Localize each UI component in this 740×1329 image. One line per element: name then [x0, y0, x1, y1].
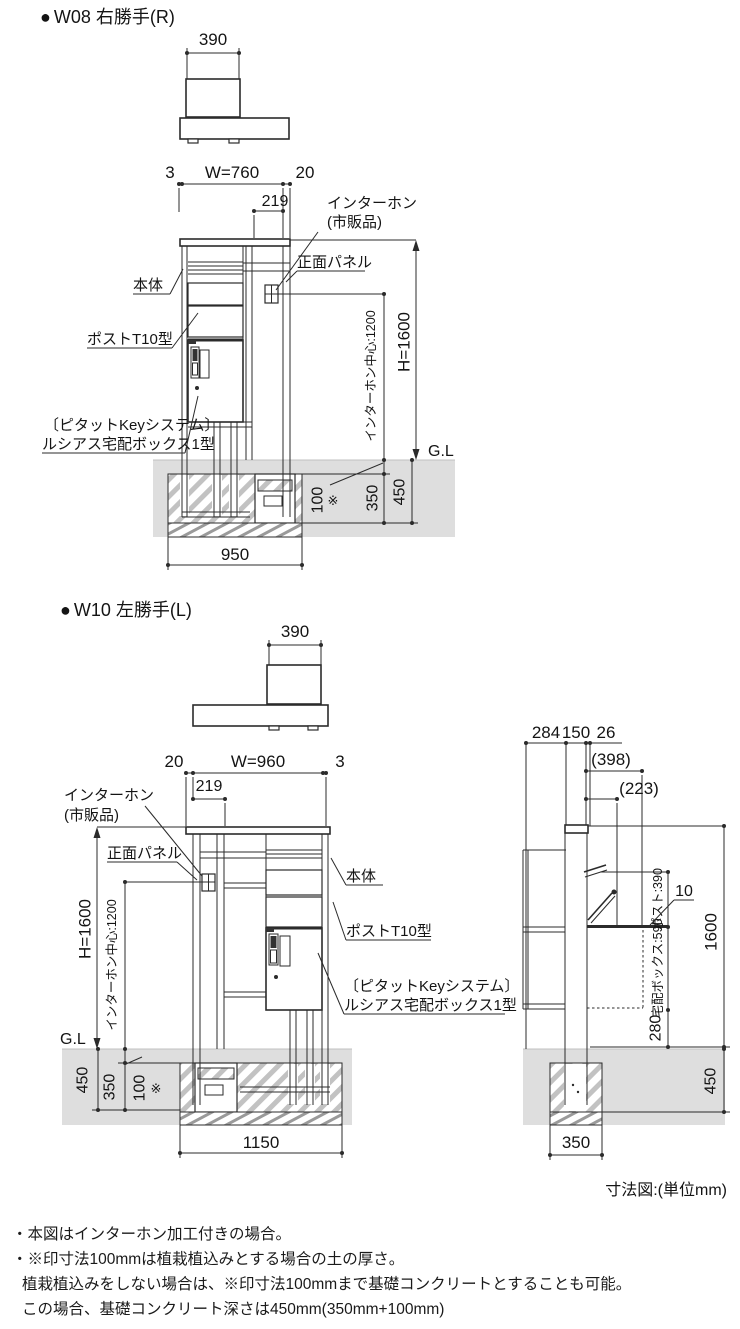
- w08-section: ●W08 右勝手(R) 390: [40, 7, 455, 570]
- w08-intercom-label-1: インターホン: [327, 195, 417, 212]
- w10-body-label: 本体: [346, 868, 376, 885]
- w10-title: ●W10 左勝手(L): [60, 600, 192, 620]
- w10-plan-post: [267, 665, 321, 704]
- side-foundation-gravel: [550, 1112, 602, 1125]
- w08-soil-depth-dim: 100: [310, 487, 327, 514]
- side-flap-arm: [588, 893, 612, 920]
- w10-intercom-label-2: (市販品): [64, 807, 119, 824]
- w08-post-flap: [188, 306, 243, 337]
- w10-top-cap: [186, 827, 330, 834]
- w08-foundation-depth-dim: 350: [365, 485, 382, 512]
- w10-post-model-label: ポストT10型: [346, 923, 432, 940]
- w10-key-system-label-2: ルシアス宅配ボックス1型: [344, 997, 517, 1014]
- w10-section: ●W10 左勝手(L) 390: [60, 600, 519, 1158]
- drawing-caption: 寸法図:(単位mm): [605, 1181, 727, 1199]
- w08-plan-base: [180, 118, 289, 139]
- w10-post-flap: [266, 897, 322, 927]
- w10-total-depth-dim: 450: [75, 1067, 92, 1094]
- w10-key-system-label-1: 〔ピタットKeyシステム〕: [344, 978, 519, 995]
- w10-plan-width-dim: 390: [281, 622, 309, 641]
- side-total-height-dim: 1600: [702, 913, 721, 951]
- w08-height-dim: H=1600: [395, 312, 414, 372]
- w08-intercom-offset-dim: 219: [262, 193, 289, 210]
- w10-soil-depth-dim: 100: [132, 1075, 149, 1102]
- side-box-height-dim: 宅配ボックス:590: [650, 918, 665, 1017]
- w10-soil-note-mark: ※: [151, 1081, 162, 1096]
- w08-height-dims: H=1600 インターホン中心:1200 G.L: [278, 240, 454, 460]
- w08-front-panel-label: 正面パネル: [297, 254, 372, 271]
- w10-intercom-offset-dim: 219: [196, 778, 223, 795]
- w10-plan-base: [193, 705, 328, 726]
- w08-soil-note-mark: ※: [328, 493, 339, 508]
- bullet-icon: ●: [40, 7, 51, 27]
- w08-foundation-width-dim: 950: [221, 545, 249, 564]
- footnotes: ・本図はインターホン加工付きの場合。 ・※印寸法100mmは植栽植込みとする場合…: [12, 1222, 631, 1322]
- side-foundation-depth-dim: 450: [703, 1068, 720, 1095]
- bullet-icon: ●: [60, 600, 71, 620]
- note-line: ・※印寸法100mmは植栽植込みとする場合の土の厚さ。: [12, 1247, 631, 1272]
- w08-foundation-gravel: [168, 523, 302, 537]
- w10-front-panel-label: 正面パネル: [107, 845, 182, 862]
- w08-post-model-label: ポストT10型: [87, 331, 173, 348]
- w08-plan-width-dim: 390: [199, 30, 227, 49]
- w10-key-dot: [274, 975, 278, 979]
- side-box-depth-ref-dim: (223): [619, 779, 659, 798]
- w08-key-system-label-2: ルシアス宅配ボックス1型: [42, 436, 215, 453]
- w08-intercom-center-dim: インターホン中心:1200: [363, 310, 378, 441]
- w08-plan-post: [186, 79, 240, 117]
- w10-intercom-label-1: インターホン: [64, 787, 154, 804]
- w10-height-dim: H=1600: [76, 899, 95, 959]
- w10-post-window: [266, 870, 322, 895]
- w08-total-depth-dim: 450: [392, 479, 409, 506]
- w08-left-gap-dim: 3: [165, 163, 174, 182]
- side-foundation-width-dim: 350: [562, 1133, 590, 1152]
- w08-top-cap: [180, 239, 290, 246]
- w10-width-dims: 20 W=960 3 219: [165, 752, 345, 826]
- w10-width-dim: W=960: [231, 752, 285, 771]
- side-depth-dims: 284 150 26 (398) (223): [524, 723, 659, 1049]
- w08-body-label: 本体: [133, 277, 163, 294]
- w10-right-gap-dim: 3: [335, 752, 344, 771]
- side-back-gap-dim: 26: [597, 723, 616, 742]
- side-post-cap: [565, 825, 588, 833]
- w10-ground-level-label: G.L: [60, 1031, 86, 1048]
- side-upper-depth-ref-dim: (398): [591, 750, 631, 769]
- note-line: ・本図はインターホン加工付きの場合。: [12, 1222, 631, 1247]
- w08-key-dot: [195, 386, 199, 390]
- side-box-bottom-dim: 280: [648, 1015, 665, 1042]
- side-front-depth-dim: 284: [532, 723, 560, 742]
- w10-intercom-center-dim: インターホン中心:1200: [104, 899, 119, 1030]
- note-line: 植栽植込みをしない場合は、※印寸法100mmまで基礎コンクリートとすることも可能…: [12, 1272, 631, 1297]
- side-plate-thickness-dim: 10: [675, 883, 693, 900]
- dimension-drawing-page: ●W08 右勝手(R) 390: [0, 0, 740, 1329]
- w08-plan-view: 390: [180, 30, 289, 143]
- w08-right-gap-dim: 20: [296, 163, 315, 182]
- w08-post-window: [188, 283, 243, 305]
- w10-foundation-gravel: [180, 1112, 342, 1125]
- w10-plan-view: 390: [193, 622, 328, 730]
- w08-width-dim: W=760: [205, 163, 259, 182]
- w10-foundation-width-dim: 1150: [243, 1133, 280, 1152]
- w10-foundation-depth-dim: 350: [102, 1074, 119, 1101]
- note-line: この場合、基礎コンクリート深さは450mm(350mm+100mm): [12, 1297, 631, 1322]
- side-view-section: 284 150 26 (398) (223): [523, 723, 730, 1199]
- w08-width-dims: 3 W=760 20 219: [165, 163, 314, 238]
- drawing-canvas: ●W08 右勝手(R) 390: [0, 0, 740, 1210]
- side-post-depth-dim: 150: [562, 723, 590, 742]
- w08-title: ●W08 右勝手(R): [40, 7, 175, 27]
- w08-intercom-label-2: (市販品): [327, 214, 382, 231]
- w10-left-gap-dim: 20: [165, 752, 184, 771]
- w08-ground: [153, 460, 455, 537]
- w08-ground-level-label: G.L: [428, 443, 454, 460]
